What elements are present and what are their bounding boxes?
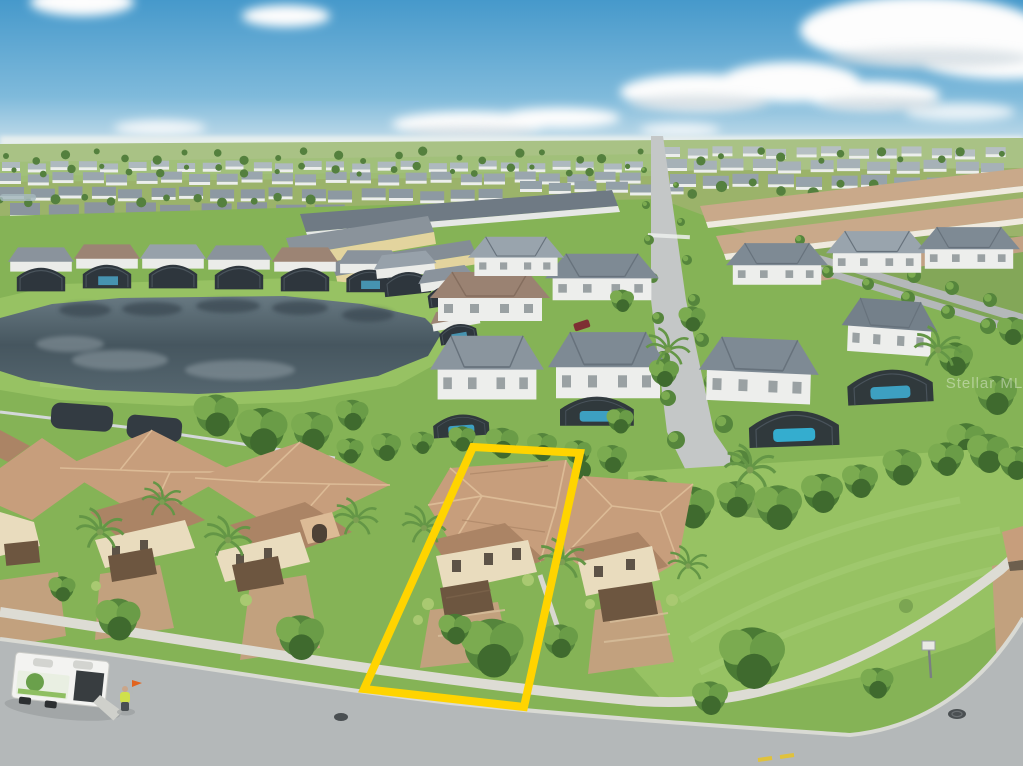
distant-house-wall (50, 167, 68, 170)
distant-tree (306, 195, 316, 205)
distant-house-roof (118, 189, 142, 198)
distant-tree (757, 147, 765, 155)
distant-house-wall (217, 182, 238, 185)
street-tree-highlight (902, 292, 910, 300)
distant-house-wall (0, 181, 21, 184)
distant-tree (40, 171, 47, 178)
distant-tree (182, 150, 188, 156)
distant-house-roof (897, 162, 920, 171)
distant-house-roof (712, 146, 732, 153)
distant-tree (275, 169, 280, 174)
distant-tree (716, 181, 727, 192)
distant-house-roof (79, 161, 97, 167)
distant-tree (67, 165, 75, 173)
distant-house-wall (420, 200, 444, 203)
distant-tree (11, 167, 16, 172)
distant-house-roof (595, 172, 616, 180)
street-tree-highlight (716, 416, 726, 426)
distant-house-roof (664, 159, 687, 168)
distant-house-roof (720, 159, 743, 168)
street-tree-highlight (641, 167, 644, 170)
distant-house-roof (137, 173, 158, 181)
distant-house-roof (451, 190, 475, 199)
distant-house-wall (161, 180, 182, 183)
distant-house-roof (768, 174, 794, 184)
entry-arch (312, 524, 327, 543)
distant-house-wall (720, 168, 743, 171)
distant-tree (625, 164, 630, 169)
distant-tree (585, 168, 593, 176)
street-tree-highlight (668, 432, 678, 442)
distant-tree (413, 162, 421, 170)
distant-tree (81, 194, 88, 201)
distant-house-wall (2, 168, 20, 171)
street-tree-highlight (643, 202, 647, 206)
distant-house-roof (849, 149, 869, 156)
distant-house-roof (549, 183, 571, 191)
distant-house-wall (484, 182, 505, 185)
distant-house-wall (431, 180, 452, 183)
distant-tree (478, 157, 486, 165)
distant-house-wall (272, 181, 293, 184)
distant-tree (749, 178, 757, 186)
distant-tree (597, 154, 606, 163)
street-tree-highlight (661, 391, 670, 400)
distant-house-roof (50, 161, 68, 167)
distant-house-roof (92, 187, 116, 196)
distant-tree (107, 197, 115, 205)
distant-house-wall (406, 181, 427, 184)
distant-house-roof (129, 162, 147, 168)
distant-house-wall (753, 168, 776, 171)
distant-house-roof (328, 191, 352, 200)
distant-tree (897, 156, 903, 162)
distant-tree (300, 147, 308, 155)
distant-house-roof (58, 186, 82, 195)
distant-tree (217, 198, 227, 208)
aerial-photo-canvas: Stellar MLS (0, 0, 1023, 766)
distant-tree (718, 153, 724, 159)
distant-tree (450, 169, 455, 174)
distant-house-wall (52, 180, 73, 183)
distant-tree (507, 163, 515, 171)
distant-tree (999, 151, 1005, 157)
street-tree-highlight (653, 313, 660, 320)
distant-tree (818, 158, 824, 164)
distant-tree (395, 152, 403, 160)
distant-house-wall (137, 181, 158, 184)
distant-house-wall (778, 170, 801, 173)
distant-house-wall (924, 169, 947, 172)
distant-tree (153, 155, 162, 164)
distant-house-wall (189, 182, 210, 185)
distant-tree (215, 164, 222, 171)
street-tree-highlight (689, 295, 696, 302)
distant-house-wall (328, 200, 352, 203)
distant-tree (99, 164, 104, 169)
street-tree-highlight (796, 236, 802, 242)
distant-house-roof (778, 161, 801, 170)
distant-house-wall (350, 180, 371, 183)
distant-house-wall (867, 171, 890, 174)
distant-house-wall (694, 170, 717, 173)
distant-house-roof (2, 162, 20, 168)
street-tree-highlight (696, 334, 704, 342)
distant-house-roof (52, 172, 73, 180)
distant-house-roof (620, 173, 641, 181)
distant-house-roof (83, 172, 104, 180)
distant-tree (877, 147, 886, 156)
distant-house-wall (837, 168, 860, 171)
distant-house-wall (956, 171, 979, 174)
distant-house-wall (226, 167, 244, 170)
distant-tree (956, 147, 965, 156)
distant-pond (0, 194, 36, 201)
distant-tree (334, 151, 343, 160)
distant-house-wall (520, 189, 542, 192)
distant-house-roof (189, 174, 210, 182)
distant-house-roof (406, 173, 427, 181)
distant-tree (126, 169, 133, 176)
distant-house-wall (326, 180, 347, 183)
distant-tree (776, 186, 786, 196)
distant-tree (275, 155, 281, 161)
street-tree-highlight (981, 319, 990, 328)
distant-house-roof (867, 162, 890, 171)
distant-house-roof (431, 172, 452, 180)
distant-tree (32, 157, 40, 165)
distant-house-roof (539, 173, 560, 181)
distant-house-wall (254, 168, 272, 171)
distant-tree (938, 155, 946, 163)
distant-tree (331, 165, 339, 173)
distant-house-roof (902, 146, 922, 153)
distant-house-roof (753, 159, 776, 168)
distant-house-roof (275, 163, 293, 169)
distant-tree (696, 156, 705, 165)
distant-house-roof (832, 176, 858, 186)
distant-house-wall (352, 169, 370, 172)
distant-tree (94, 148, 100, 154)
distant-tree (418, 147, 427, 156)
distant-house-roof (604, 163, 622, 169)
distant-house-wall (28, 182, 49, 185)
distant-tree (194, 194, 202, 202)
distant-house-roof (461, 174, 482, 182)
distant-tree (391, 166, 398, 173)
distant-house-wall (106, 182, 127, 185)
distant-house-wall (797, 154, 817, 157)
distant-house-wall (630, 192, 652, 195)
distant-tree (837, 150, 845, 158)
distant-house-wall (362, 197, 386, 200)
distant-house-wall (553, 167, 571, 170)
distant-tree (239, 156, 248, 165)
distant-house-roof (797, 147, 817, 154)
street-tree-highlight (942, 306, 950, 314)
distant-house-roof (304, 161, 322, 167)
distant-house-roof (420, 191, 444, 200)
street-tree-highlight (678, 219, 682, 223)
distant-tree (298, 163, 305, 170)
distant-house-roof (152, 188, 176, 197)
distant-house-wall (378, 182, 399, 185)
distant-house-roof (837, 159, 860, 168)
distant-tree (214, 149, 222, 157)
watermark: Stellar MLS (946, 375, 1023, 392)
distant-tree (529, 164, 534, 169)
distant-house-roof (106, 174, 127, 182)
distant-house-roof (520, 181, 542, 189)
distant-house-wall (83, 180, 104, 183)
distant-tree (251, 198, 258, 205)
street-tree-highlight (984, 294, 992, 302)
distant-tree (515, 148, 524, 157)
distant-house-roof (574, 181, 596, 189)
distant-tree (471, 170, 478, 177)
distant-tree (184, 165, 189, 170)
distant-tree (3, 153, 9, 159)
distant-tree (121, 155, 129, 163)
distant-tree (566, 170, 573, 177)
distant-tree (136, 197, 146, 207)
distant-house-roof (450, 163, 468, 169)
distant-house-roof (295, 174, 316, 182)
rear-lanai (50, 402, 114, 432)
distant-tree (240, 169, 248, 177)
distant-tree (638, 148, 644, 154)
distant-house-roof (670, 174, 696, 184)
manhole (334, 713, 348, 721)
distant-house-wall (479, 167, 497, 170)
distant-house-wall (295, 182, 316, 185)
distant-tree (539, 149, 545, 155)
distant-house-roof (378, 174, 399, 182)
distant-house-roof (479, 189, 503, 198)
distant-house-roof (272, 173, 293, 181)
distant-tree (156, 169, 164, 177)
distant-house-roof (210, 189, 234, 198)
distant-house-wall (849, 156, 869, 159)
distant-house-roof (217, 174, 238, 182)
distant-house-roof (932, 148, 952, 155)
distant-house-wall (304, 167, 322, 170)
distant-tree (61, 150, 70, 159)
distant-house-wall (429, 169, 447, 172)
distant-house-wall (902, 153, 922, 156)
manhole (948, 709, 966, 719)
distant-house-wall (58, 195, 82, 198)
distant-house-roof (0, 173, 21, 181)
distant-house-roof (796, 177, 822, 187)
distant-house-wall (461, 182, 482, 185)
distant-house-wall (811, 169, 834, 172)
distant-tree (576, 156, 584, 164)
distant-house-wall (389, 198, 413, 201)
distant-house-wall (79, 167, 97, 170)
distant-house-wall (897, 171, 920, 174)
distant-house-wall (100, 169, 118, 172)
street-tree-highlight (645, 236, 651, 242)
distant-tree (163, 195, 170, 202)
distant-tree (457, 155, 463, 161)
distant-house-roof (429, 163, 447, 169)
street-tree-highlight (863, 279, 870, 286)
street-tree-highlight (946, 282, 954, 290)
distant-tree (837, 180, 845, 188)
distant-house-roof (553, 161, 571, 167)
distant-tree (51, 194, 61, 204)
distant-tree (687, 189, 697, 199)
distant-tree (776, 152, 785, 161)
street-tree-highlight (673, 182, 676, 185)
distant-house-roof (630, 184, 652, 192)
distant-house-roof (515, 172, 536, 180)
distant-house-roof (362, 188, 386, 197)
street-tree-highlight (683, 256, 689, 262)
distant-tree (357, 171, 362, 176)
distant-house-roof (389, 189, 413, 198)
distant-tree (273, 193, 281, 201)
distant-house-roof (606, 182, 628, 190)
aerial-photo: Stellar MLS (0, 0, 1023, 766)
distant-house-roof (254, 162, 272, 168)
street-tree-highlight (823, 267, 830, 274)
distant-house-wall (955, 156, 975, 159)
distant-house-roof (352, 163, 370, 169)
distant-tree (360, 158, 366, 164)
distant-house-roof (688, 149, 708, 156)
distant-house-roof (956, 162, 979, 171)
distant-house-roof (241, 189, 265, 198)
distant-house-wall (242, 180, 263, 183)
distant-house-roof (484, 174, 505, 182)
